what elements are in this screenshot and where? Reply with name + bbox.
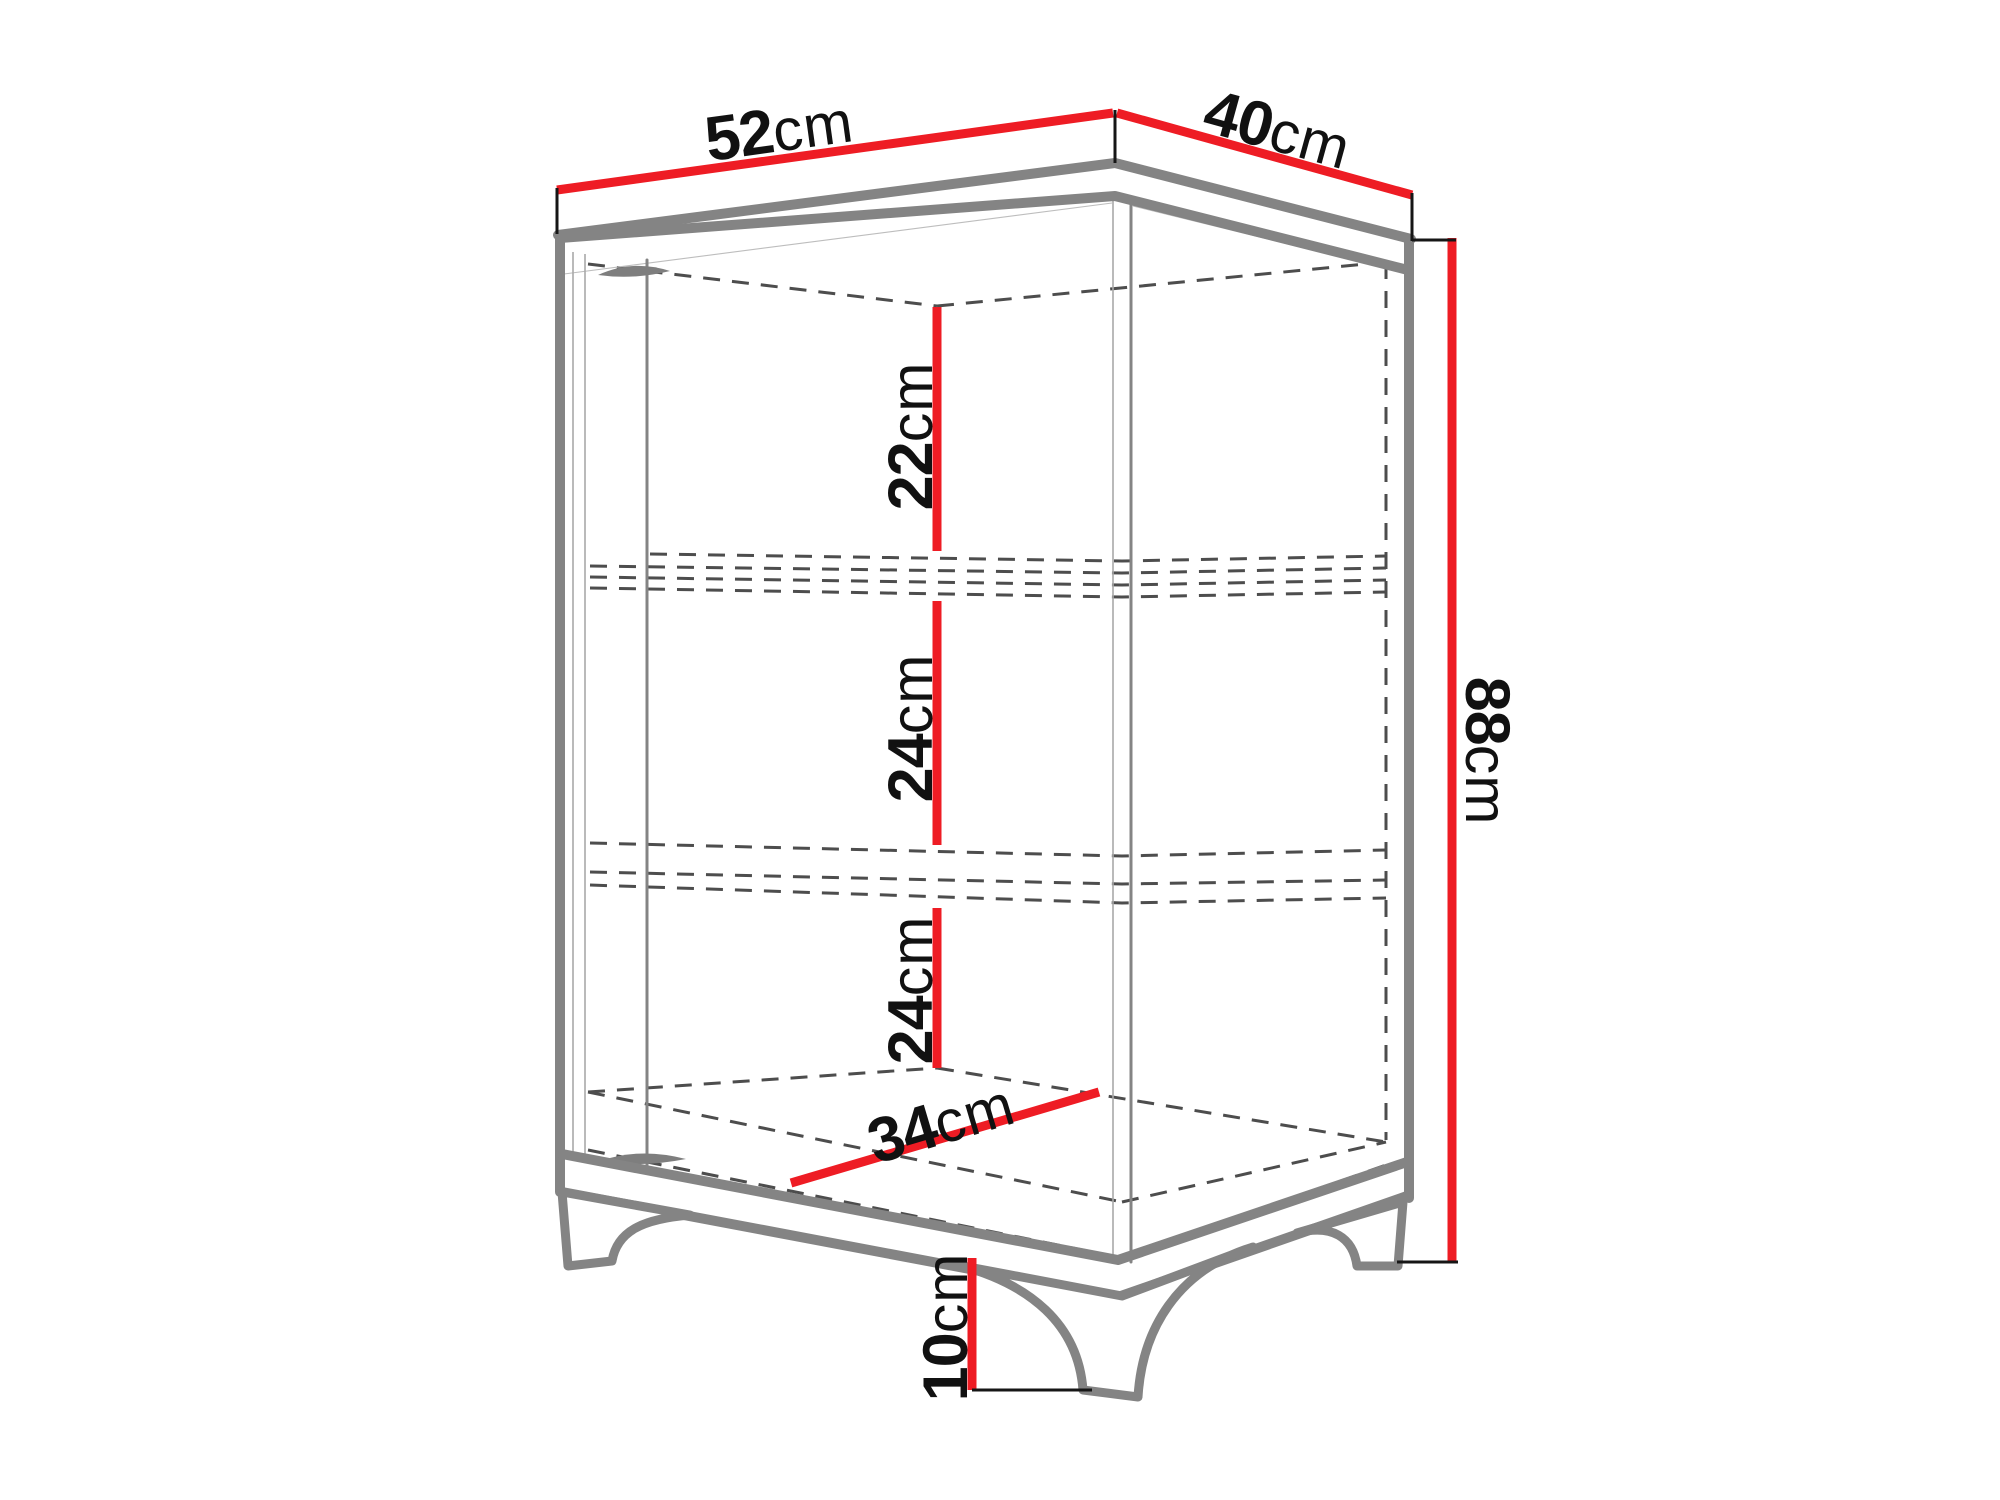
label-top-width: 52cm	[701, 85, 858, 175]
label-floor-diagonal: 34cm	[860, 1068, 1022, 1177]
shelf-line	[590, 885, 1386, 903]
shelf-line	[590, 577, 1386, 585]
upper-shelf-lines	[590, 554, 1386, 597]
shelf-line	[590, 843, 1386, 856]
shelf-line	[590, 588, 1386, 597]
shelf-line	[590, 872, 1386, 884]
interior-top-right-edge	[937, 262, 1386, 306]
dimension-lines	[557, 113, 1452, 1390]
diagram-canvas: 52cm 40cm 88cm 22cm 24cm 24cm 34cm 10cm	[0, 0, 2000, 1500]
label-leg-height: 10cm	[911, 1253, 981, 1402]
label-section-bottom: 24cm	[876, 916, 946, 1065]
left-leg	[562, 1192, 690, 1266]
top-shadow-lens	[598, 266, 670, 277]
dimension-ticks	[557, 110, 1458, 1390]
label-height: 88cm	[1452, 677, 1522, 826]
shelf-line	[590, 566, 1386, 573]
label-top-depth: 40cm	[1197, 76, 1359, 183]
label-section-middle: 24cm	[876, 654, 946, 803]
label-section-top: 22cm	[876, 362, 946, 511]
cabinet-dimension-diagram: 52cm 40cm 88cm 22cm 24cm 24cm 34cm 10cm	[0, 0, 2000, 1500]
lower-shelf-lines	[590, 843, 1386, 903]
floor-back-left-edge	[588, 1068, 937, 1092]
shelf-line	[650, 554, 1386, 561]
floor-front-right-edge	[1122, 1142, 1386, 1202]
legs	[562, 1192, 1403, 1397]
front-corner-leg	[958, 1247, 1253, 1397]
